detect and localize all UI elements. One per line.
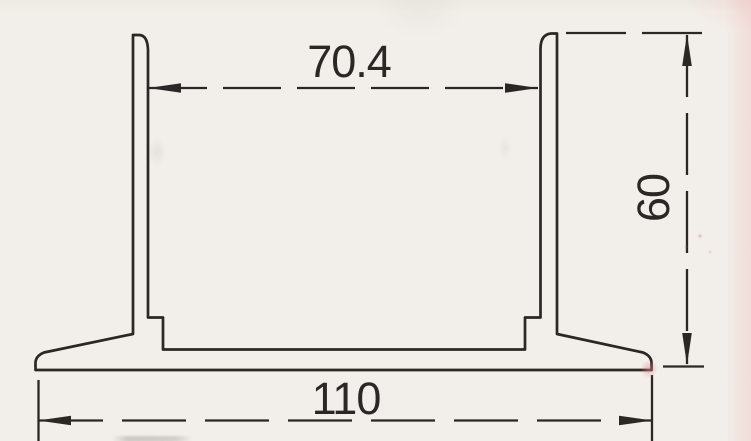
inner-width-arrow-right-icon bbox=[505, 83, 538, 93]
height-arrow-up-icon bbox=[682, 34, 692, 66]
height-arrow-down-icon bbox=[682, 333, 692, 365]
base-width-arrow-left-icon bbox=[38, 416, 71, 426]
height-value: 60 bbox=[628, 174, 679, 222]
base-width-value: 110 bbox=[312, 373, 381, 424]
inner-width-dimension: 70.4 bbox=[148, 36, 538, 93]
scanned-drawing-page: 70.4 60 110 bbox=[0, 0, 751, 441]
base-width-arrow-right-icon bbox=[619, 416, 652, 426]
profile-drawing-svg: 70.4 60 110 bbox=[0, 0, 751, 441]
height-dimension: 60 bbox=[566, 33, 704, 367]
inner-width-value: 70.4 bbox=[307, 36, 391, 87]
inner-width-arrow-left-icon bbox=[148, 83, 181, 93]
base-width-dimension: 110 bbox=[38, 373, 652, 441]
